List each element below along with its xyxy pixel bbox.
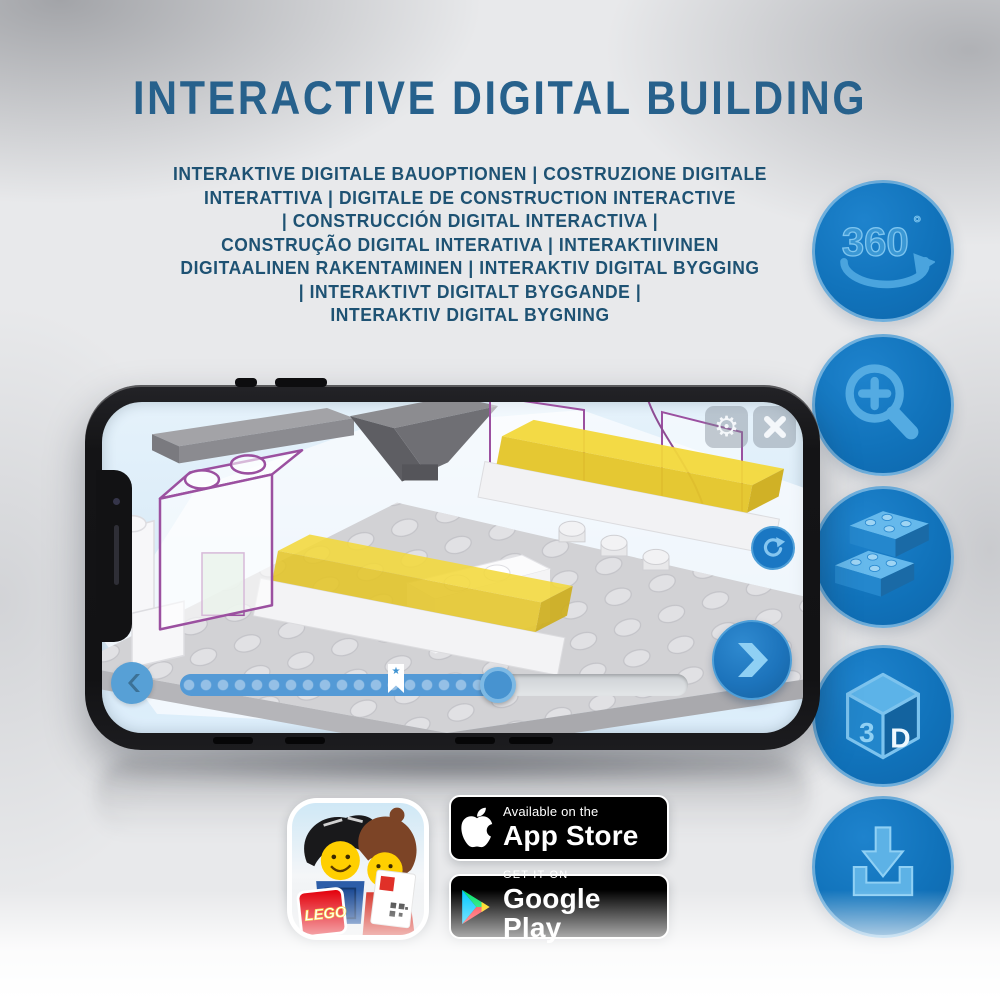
page-title-text: INTERACTIVE DIGITAL BUILDING <box>133 70 867 125</box>
phone-side-button <box>235 378 257 387</box>
settings-button[interactable]: ⚙ <box>705 406 748 448</box>
earpiece-speaker <box>114 525 119 585</box>
close-button[interactable] <box>753 406 796 448</box>
subtitle-line: | CONSTRUCCIÓN DIGITAL INTERACTIVA | <box>82 210 858 234</box>
phone-speaker-slit <box>509 737 553 744</box>
phone-notch <box>96 470 132 642</box>
app-store-badge[interactable]: Available on the App Store <box>449 795 669 861</box>
svg-text:°: ° <box>913 212 921 234</box>
phone-side-button <box>275 378 327 387</box>
build-progress-bar[interactable]: ★ <box>180 674 688 696</box>
progress-seek-handle[interactable] <box>480 667 516 703</box>
gear-icon: ⚙ <box>714 413 739 441</box>
chevron-left-icon <box>122 672 142 694</box>
build-progress-fill <box>180 674 498 696</box>
google-play-tagline: GET IT ON <box>503 870 667 882</box>
feature-badge-3d: 3 D <box>812 645 954 787</box>
zoom-in-icon <box>833 355 933 455</box>
phone-speaker-slit <box>455 737 495 744</box>
apple-logo-icon <box>451 807 503 849</box>
front-camera <box>113 498 120 505</box>
rotate-view-button[interactable] <box>751 526 795 570</box>
marketing-image: INTERACTIVE DIGITAL BUILDING INTERAKTIVE… <box>0 0 1000 1000</box>
smartphone: ⚙ ★ <box>85 385 820 750</box>
feature-badge-bricks <box>812 486 954 628</box>
app-store-tagline: Available on the <box>503 805 639 819</box>
phone-speaker-slit <box>285 737 325 744</box>
floor-reflection <box>0 890 1000 1000</box>
bricks-icon <box>833 507 933 607</box>
svg-text:3: 3 <box>859 717 875 748</box>
subtitle-line: INTERAKTIVE DIGITALE BAUOPTIONEN | COSTR… <box>82 163 858 187</box>
subtitle-line: CONSTRUÇÃO DIGITAL INTERATIVA | INTERAKT… <box>82 234 858 258</box>
page-title: INTERACTIVE DIGITAL BUILDING <box>0 70 1000 125</box>
subtitle-line: | INTERAKTIVT DIGITALT BYGGANDE | <box>82 281 858 305</box>
rotate-icon <box>759 534 787 562</box>
app-store-name: App Store <box>503 821 639 850</box>
close-icon <box>763 415 787 439</box>
multilingual-subtitle: INTERAKTIVE DIGITALE BAUOPTIONEN | COSTR… <box>70 163 870 328</box>
star-icon: ★ <box>388 664 404 680</box>
chevron-right-icon <box>730 637 774 683</box>
app-screen: ⚙ ★ <box>102 402 803 733</box>
subtitle-line: INTERATTIVA | DIGITALE DE CONSTRUCTION I… <box>82 187 858 211</box>
next-step-button[interactable] <box>712 620 792 700</box>
previous-step-button[interactable] <box>111 662 153 704</box>
phone-speaker-slit <box>213 737 253 744</box>
subtitle-line: DIGITAALINEN RAKENTAMINEN | INTERAKTIV D… <box>82 257 858 281</box>
feature-badge-zoom <box>812 334 954 476</box>
cube-3d-icon: 3 D <box>833 666 933 766</box>
svg-text:D: D <box>890 722 910 753</box>
subtitle-line: INTERAKTIV DIGITAL BYGNING <box>82 304 858 328</box>
